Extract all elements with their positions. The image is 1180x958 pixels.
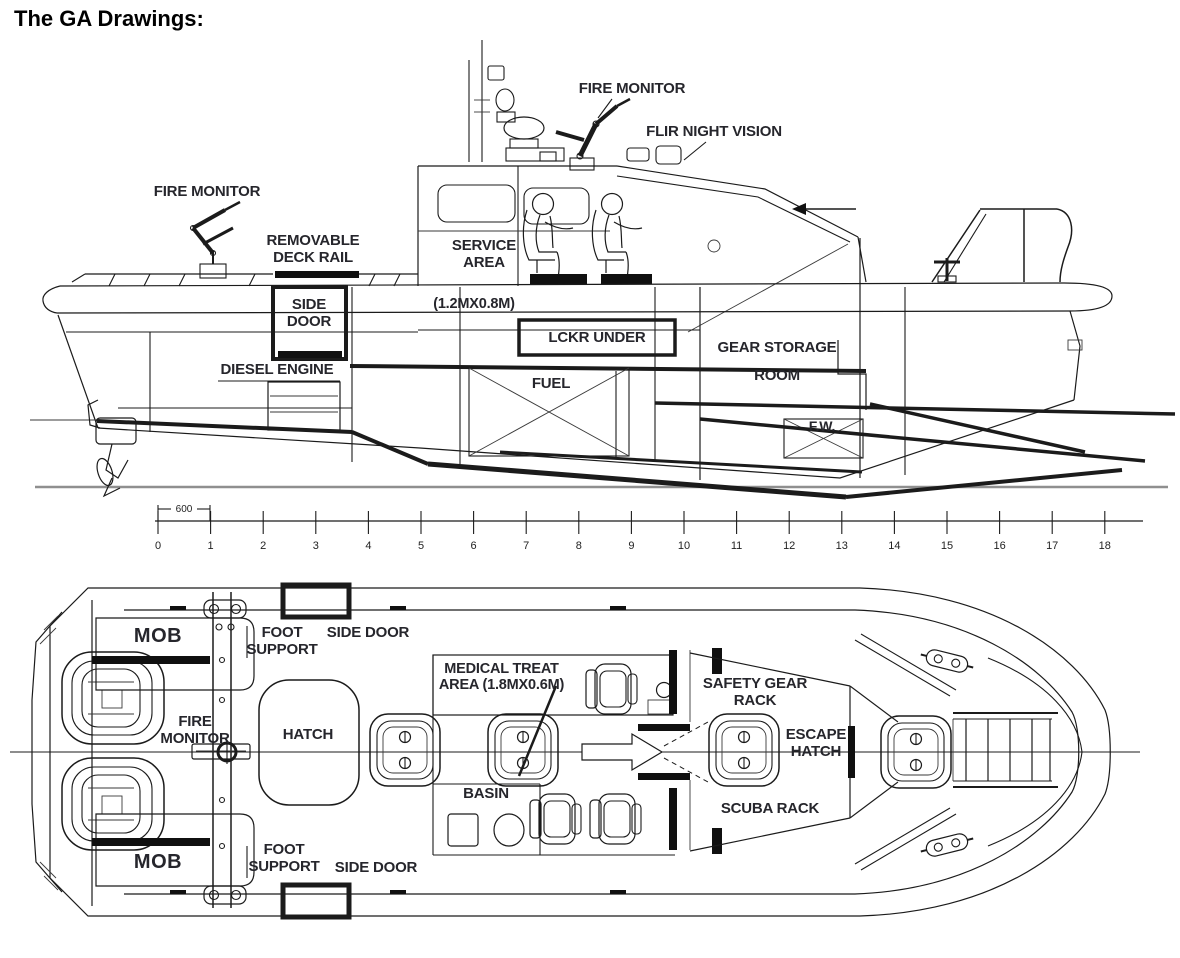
label-side-door-plan-bottom: SIDE DOOR	[326, 860, 426, 877]
svg-text:6: 6	[471, 540, 477, 552]
svg-text:0: 0	[155, 540, 161, 552]
label-fire-monitor-aft: FIRE MONITOR	[142, 184, 272, 201]
ruler-dimension: 600	[158, 504, 210, 521]
label-escape-hatch: ESCAPE HATCH	[778, 727, 854, 761]
flir-device	[627, 142, 706, 164]
sterndrive	[88, 400, 136, 496]
aft-deck-rail	[72, 271, 418, 286]
label-basin: BASIN	[446, 786, 526, 803]
label-flir-night-vision: FLIR NIGHT VISION	[639, 124, 789, 141]
scale-ruler: 600 0123456789101112131415161718	[155, 504, 1143, 552]
label-foot-support-top: FOOT SUPPORT	[238, 625, 326, 659]
fire-monitor-roof-device	[556, 99, 630, 170]
bow-pulpit	[932, 209, 1072, 282]
deck-hatch-escape	[709, 714, 779, 786]
basin-unit	[448, 814, 524, 846]
svg-text:1: 1	[208, 540, 214, 552]
label-fresh-water: F.W.	[792, 419, 852, 435]
svg-text:11: 11	[731, 540, 742, 552]
label-removable-deck-rail: REMOVABLE DECK RAIL	[255, 233, 371, 267]
svg-text:3: 3	[313, 540, 319, 552]
ga-drawing-page: 600 0123456789101112131415161718	[0, 0, 1180, 958]
label-medical-treat-area: MEDICAL TREAT AREA (1.8MX0.6M)	[424, 661, 579, 693]
svg-text:18: 18	[1099, 540, 1111, 552]
cabin-window	[524, 188, 589, 224]
label-side-door-profile: SIDE DOOR	[277, 297, 341, 331]
spray-rails	[97, 403, 1175, 497]
svg-text:10: 10	[678, 540, 690, 552]
svg-text:16: 16	[993, 540, 1005, 552]
svg-text:12: 12	[783, 540, 795, 552]
label-side-door-plan-top: SIDE DOOR	[318, 625, 418, 642]
mast-and-radar	[469, 40, 564, 162]
svg-text:8: 8	[576, 540, 582, 552]
label-fire-monitor-top: FIRE MONITOR	[567, 81, 697, 98]
label-safety-gear-rack: SAFETY GEAR RACK	[693, 676, 817, 710]
svg-text:4: 4	[365, 540, 371, 552]
cleat	[919, 831, 975, 860]
deck-hatch	[370, 714, 440, 786]
label-hatch: HATCH	[270, 727, 346, 744]
diesel-engine-box	[218, 381, 340, 430]
label-lckr-under: LCKR UNDER	[532, 330, 662, 347]
label-scuba-rack: SCUBA RACK	[712, 801, 828, 818]
cleat	[919, 647, 975, 676]
cabin-direction-arrow	[792, 203, 856, 215]
cabin-window	[438, 185, 515, 222]
svg-text:13: 13	[836, 540, 848, 552]
label-fuel: FUEL	[516, 376, 586, 393]
svg-text:15: 15	[941, 540, 953, 552]
svg-text:2: 2	[260, 540, 266, 552]
deck-hatch	[488, 714, 558, 786]
label-service-area: SERVICE AREA	[442, 238, 526, 272]
label-gear-storage-room: GEAR STORAGE ROOM	[707, 334, 847, 390]
svg-text:5: 5	[418, 540, 424, 552]
label-service-area-dim: (1.2MX0.8M)	[419, 296, 529, 312]
label-mob-top: MOB	[118, 625, 198, 647]
svg-text:14: 14	[888, 540, 900, 552]
label-mob-bottom: MOB	[118, 851, 198, 873]
side-door-plan-top	[283, 585, 349, 617]
side-door-sill	[278, 351, 342, 358]
svg-text:9: 9	[628, 540, 634, 552]
ruler-ticks: 0123456789101112131415161718	[155, 511, 1111, 552]
crew-figures	[523, 194, 652, 285]
label-diesel-engine: DIESEL ENGINE	[212, 362, 342, 379]
removable-deck-rail-bar	[275, 271, 359, 278]
ga-drawing-canvas: 600 0123456789101112131415161718	[0, 0, 1180, 958]
side-view-drawing	[30, 40, 1175, 497]
bow-ladder	[953, 713, 1058, 787]
svg-text:7: 7	[523, 540, 529, 552]
fire-monitor-aft-device	[191, 202, 241, 278]
svg-text:17: 17	[1046, 540, 1058, 552]
outboard-engines	[62, 652, 164, 850]
label-foot-support-bottom: FOOT SUPPORT	[240, 842, 328, 876]
side-door-plan-bottom	[283, 885, 349, 917]
page-title: The GA Drawings:	[14, 6, 204, 32]
ruler-dim-label: 600	[176, 504, 193, 515]
label-fire-monitor-plan: FIRE MONITOR	[150, 714, 240, 748]
